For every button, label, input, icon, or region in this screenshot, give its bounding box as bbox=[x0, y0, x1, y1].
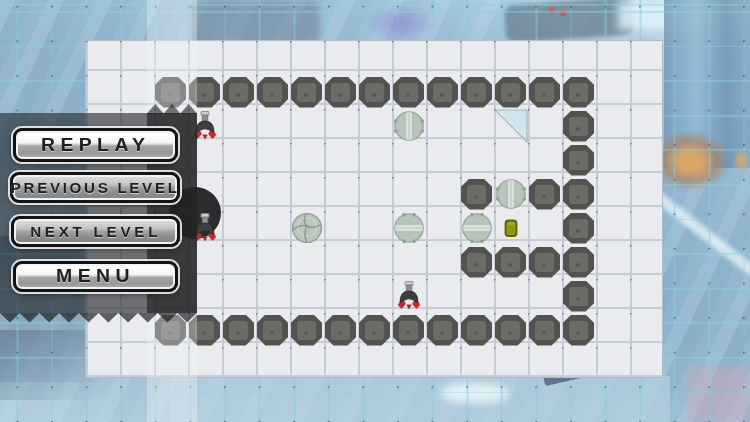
menu-panel-teeth bbox=[147, 104, 197, 114]
previous-level-button[interactable]: PREVIOUS LEVEL bbox=[10, 172, 180, 203]
wall-block bbox=[563, 247, 594, 278]
wall-block bbox=[393, 77, 424, 108]
app-root: REPLAY PREVIOUS LEVEL NEXT LEVEL MENU bbox=[0, 0, 750, 422]
wall-block bbox=[291, 315, 322, 346]
next-level-button[interactable]: NEXT LEVEL bbox=[11, 216, 180, 247]
roller-icon bbox=[494, 177, 528, 211]
wall-block bbox=[223, 315, 254, 346]
wall-block bbox=[461, 179, 492, 210]
roller-icon bbox=[460, 211, 494, 245]
wall-block bbox=[393, 315, 424, 346]
menu-button-label: MENU bbox=[56, 266, 135, 287]
wall-block bbox=[427, 315, 458, 346]
wall-block bbox=[427, 77, 458, 108]
menu-button[interactable]: MENU bbox=[13, 261, 178, 292]
wall-block bbox=[461, 77, 492, 108]
wall-block bbox=[461, 315, 492, 346]
wall-block bbox=[359, 315, 390, 346]
replay-button[interactable]: REPLAY bbox=[13, 128, 178, 162]
wall-block bbox=[563, 77, 594, 108]
wall-block bbox=[529, 179, 560, 210]
glass-triangle-icon bbox=[494, 109, 528, 143]
wall-block bbox=[563, 179, 594, 210]
roller-icon bbox=[392, 211, 426, 245]
wall-block bbox=[563, 315, 594, 346]
previous-level-button-label: PREVIOUS LEVEL bbox=[11, 180, 180, 196]
wall-block bbox=[461, 247, 492, 278]
boulder-icon bbox=[290, 211, 324, 245]
wall-block bbox=[325, 77, 356, 108]
wall-block bbox=[325, 315, 356, 346]
wall-block bbox=[495, 315, 526, 346]
rocket-icon[interactable] bbox=[392, 279, 426, 313]
wall-block bbox=[563, 111, 594, 142]
wall-block bbox=[529, 77, 560, 108]
wall-block bbox=[223, 77, 254, 108]
wall-block bbox=[495, 77, 526, 108]
wall-block bbox=[291, 77, 322, 108]
wall-block bbox=[257, 77, 288, 108]
key-icon bbox=[494, 211, 528, 245]
roller-icon bbox=[392, 109, 426, 143]
wall-block bbox=[529, 315, 560, 346]
wall-block bbox=[359, 77, 390, 108]
wall-block bbox=[257, 315, 288, 346]
wall-block bbox=[563, 213, 594, 244]
wall-block bbox=[563, 281, 594, 312]
wall-block bbox=[495, 247, 526, 278]
wall-block bbox=[529, 247, 560, 278]
replay-button-label: REPLAY bbox=[41, 135, 150, 156]
next-level-button-label: NEXT LEVEL bbox=[30, 224, 161, 240]
wall-block bbox=[563, 145, 594, 176]
